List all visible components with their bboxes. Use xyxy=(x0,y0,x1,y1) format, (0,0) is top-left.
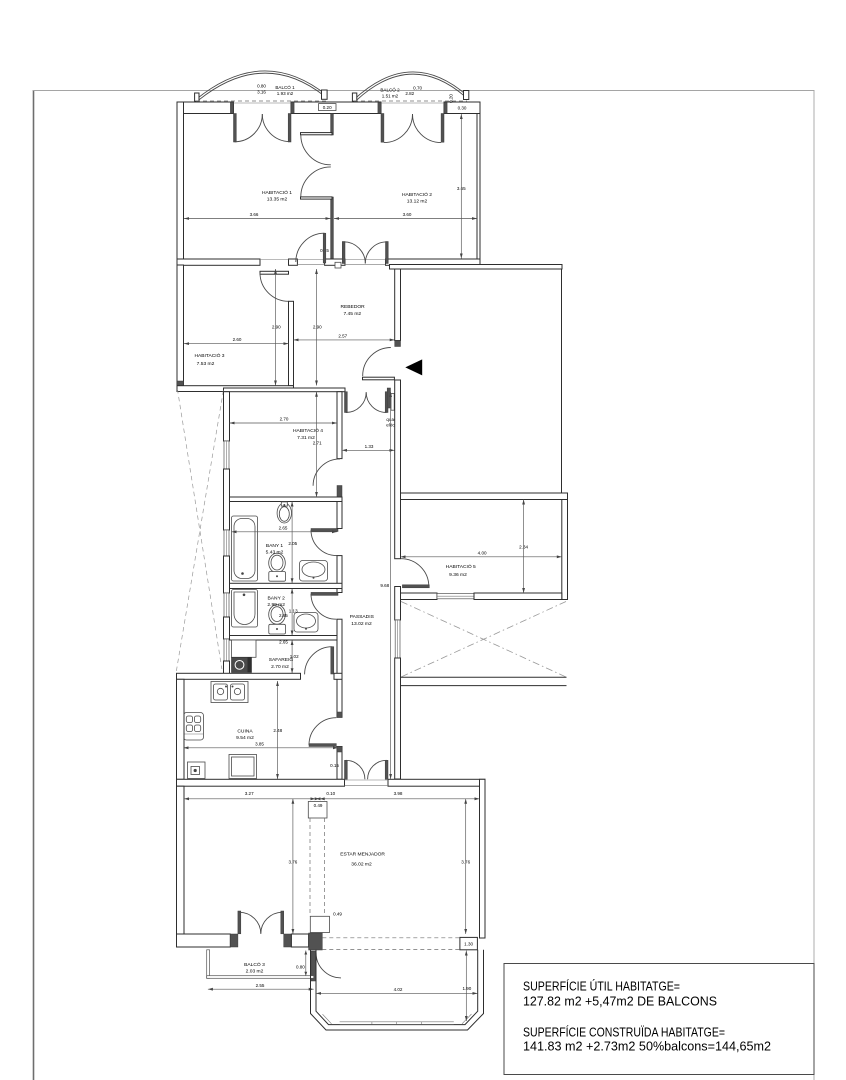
svg-text:9.68: 9.68 xyxy=(380,583,389,588)
svg-text:BANY 2: BANY 2 xyxy=(268,595,286,601)
svg-text:SUPERFÍCIE ÚTIL HABITATGE=: SUPERFÍCIE ÚTIL HABITATGE= xyxy=(523,979,680,994)
svg-text:0.49: 0.49 xyxy=(314,803,323,808)
svg-text:7.45 m2: 7.45 m2 xyxy=(343,311,361,317)
svg-text:127.82 m2 +5,47m2 DE BALCONS: 127.82 m2 +5,47m2 DE BALCONS xyxy=(523,994,717,1009)
svg-text:3.27: 3.27 xyxy=(245,791,254,796)
svg-text:2.70: 2.70 xyxy=(280,417,289,422)
svg-text:4.02: 4.02 xyxy=(394,987,403,992)
svg-text:2.05: 2.05 xyxy=(288,541,297,546)
svg-text:HABITACIÓ 3: HABITACIÓ 3 xyxy=(194,352,224,359)
svg-text:3.66: 3.66 xyxy=(250,212,259,217)
svg-text:2.03 m2: 2.03 m2 xyxy=(246,969,264,975)
svg-text:HABITACIÓ 2: HABITACIÓ 2 xyxy=(402,191,432,198)
svg-text:ESTAR MENJADOR: ESTAR MENJADOR xyxy=(340,851,385,857)
svg-text:0.20: 0.20 xyxy=(449,94,454,103)
svg-text:1.02: 1.02 xyxy=(290,654,299,659)
svg-text:0.15: 0.15 xyxy=(330,763,339,768)
svg-text:HABITACIÓ 4: HABITACIÓ 4 xyxy=(293,427,323,434)
svg-text:0.80: 0.80 xyxy=(257,84,266,89)
svg-text:1.33: 1.33 xyxy=(365,444,374,449)
svg-text:9.36 m2: 9.36 m2 xyxy=(449,572,467,578)
svg-text:0.70: 0.70 xyxy=(413,86,422,91)
svg-text:SUPERFÍCIE CONSTRUÏDA HABITATG: SUPERFÍCIE CONSTRUÏDA HABITATGE= xyxy=(523,1025,725,1040)
svg-text:0.80: 0.80 xyxy=(296,965,305,970)
svg-text:2.65: 2.65 xyxy=(279,639,288,644)
svg-text:3.85: 3.85 xyxy=(255,742,264,747)
svg-text:2.70 m2: 2.70 m2 xyxy=(271,664,289,670)
svg-text:CUINA: CUINA xyxy=(237,728,253,734)
svg-text:0.20: 0.20 xyxy=(323,105,332,110)
svg-text:HABITACIÓ 5: HABITACIÓ 5 xyxy=(446,563,476,570)
svg-text:7.53 m2: 7.53 m2 xyxy=(197,361,215,367)
svg-text:PASSADIS: PASSADIS xyxy=(350,614,375,620)
svg-text:HABITACIÓ 1: HABITACIÓ 1 xyxy=(262,189,292,196)
svg-text:3.16: 3.16 xyxy=(257,90,266,95)
svg-text:2.90: 2.90 xyxy=(313,325,322,330)
svg-text:3.98: 3.98 xyxy=(394,791,403,796)
svg-text:1.90: 1.90 xyxy=(462,986,471,991)
svg-text:1.13: 1.13 xyxy=(289,608,298,613)
svg-text:36.02 m2: 36.02 m2 xyxy=(351,862,372,868)
svg-text:5.43 m2: 5.43 m2 xyxy=(266,549,284,555)
svg-text:2.65: 2.65 xyxy=(279,526,288,531)
svg-text:13.12 m2: 13.12 m2 xyxy=(407,199,428,205)
svg-text:1.93 m2: 1.93 m2 xyxy=(277,91,294,96)
svg-text:2.48: 2.48 xyxy=(273,728,282,733)
svg-text:4.00: 4.00 xyxy=(478,551,487,556)
svg-text:2.82: 2.82 xyxy=(405,91,414,96)
svg-text:0.49: 0.49 xyxy=(333,911,342,916)
svg-text:0.10: 0.10 xyxy=(326,791,335,796)
svg-text:0.30: 0.30 xyxy=(458,105,467,110)
svg-text:BALCÓ 2: BALCÓ 2 xyxy=(380,87,400,93)
svg-text:BANY 1: BANY 1 xyxy=(266,543,284,549)
svg-text:BALCÓ 3: BALCÓ 3 xyxy=(244,961,265,968)
svg-text:9.54 m2: 9.54 m2 xyxy=(236,735,254,741)
svg-text:141.83 m2 +2.73m2 50%balcons=1: 141.83 m2 +2.73m2 50%balcons=144,65m2 xyxy=(523,1039,771,1054)
svg-text:1.51 m2: 1.51 m2 xyxy=(382,94,399,99)
svg-text:2.57: 2.57 xyxy=(338,334,347,339)
svg-text:2.90: 2.90 xyxy=(272,325,281,330)
svg-text:2.99 m2: 2.99 m2 xyxy=(267,602,285,608)
svg-text:2.71: 2.71 xyxy=(313,441,322,446)
svg-text:2.55: 2.55 xyxy=(256,983,265,988)
svg-text:2.60: 2.60 xyxy=(233,337,242,342)
svg-text:3.60: 3.60 xyxy=(403,212,412,217)
svg-text:BALCÓ 1: BALCÓ 1 xyxy=(275,84,295,90)
svg-text:2.65: 2.65 xyxy=(279,613,288,618)
svg-text:13.02 m2: 13.02 m2 xyxy=(351,621,372,627)
svg-text:1.30: 1.30 xyxy=(464,942,473,947)
svg-text:REBEDOR: REBEDOR xyxy=(341,304,366,310)
svg-text:13.35 m2: 13.35 m2 xyxy=(267,197,288,203)
